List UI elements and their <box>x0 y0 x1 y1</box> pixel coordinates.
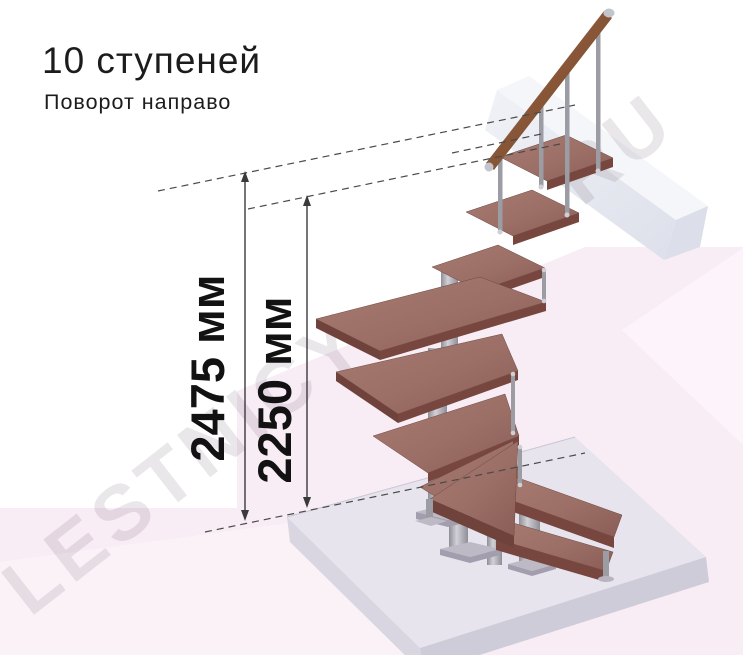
handrail-bottom-cap <box>485 163 494 172</box>
dimension-label-2475: 2475 мм <box>181 274 234 461</box>
end-post-base <box>598 576 614 582</box>
dimension-label-2250: 2250 мм <box>248 296 301 483</box>
page-subtitle: Поворот направо <box>44 90 231 114</box>
baluster <box>565 67 570 216</box>
baluster <box>539 100 544 188</box>
page-title: 10 ступеней <box>42 40 261 81</box>
staircase-diagram-page: LESTNICY .RU <box>0 0 743 655</box>
baluster <box>498 153 503 233</box>
staircase-diagram: LESTNICY .RU <box>0 0 743 655</box>
handrail-top-cap <box>604 9 615 18</box>
baluster <box>596 29 601 172</box>
heading: 10 ступеней Поворот направо <box>42 40 261 114</box>
end-support-post <box>603 551 609 579</box>
